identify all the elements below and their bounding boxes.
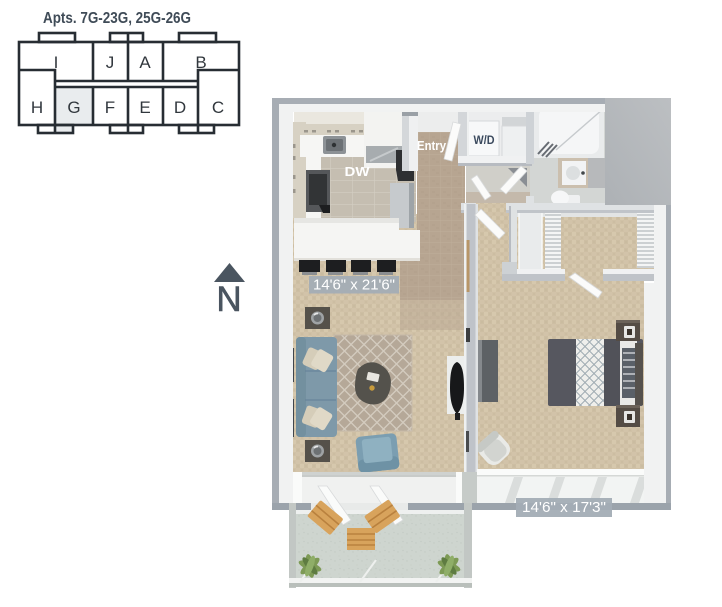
- svg-text:W/D: W/D: [474, 133, 495, 147]
- svg-text:D: D: [174, 98, 186, 117]
- svg-text:N: N: [216, 280, 241, 319]
- svg-text:F: F: [105, 98, 115, 117]
- svg-text:14'6" x 17'3": 14'6" x 17'3": [522, 500, 606, 516]
- svg-text:Entry: Entry: [417, 139, 446, 153]
- svg-text:G: G: [67, 98, 80, 117]
- svg-text:Apts. 7G-23G, 25G-26G: Apts. 7G-23G, 25G-26G: [43, 10, 191, 27]
- svg-text:C: C: [212, 98, 224, 117]
- svg-text:E: E: [139, 98, 150, 117]
- svg-text:DW: DW: [345, 164, 371, 179]
- svg-text:A: A: [139, 53, 151, 72]
- svg-text:H: H: [31, 98, 43, 117]
- svg-text:I: I: [54, 53, 59, 72]
- svg-text:14'6" x 21'6": 14'6" x 21'6": [313, 278, 395, 294]
- svg-text:J: J: [106, 53, 115, 72]
- svg-text:B: B: [195, 53, 206, 72]
